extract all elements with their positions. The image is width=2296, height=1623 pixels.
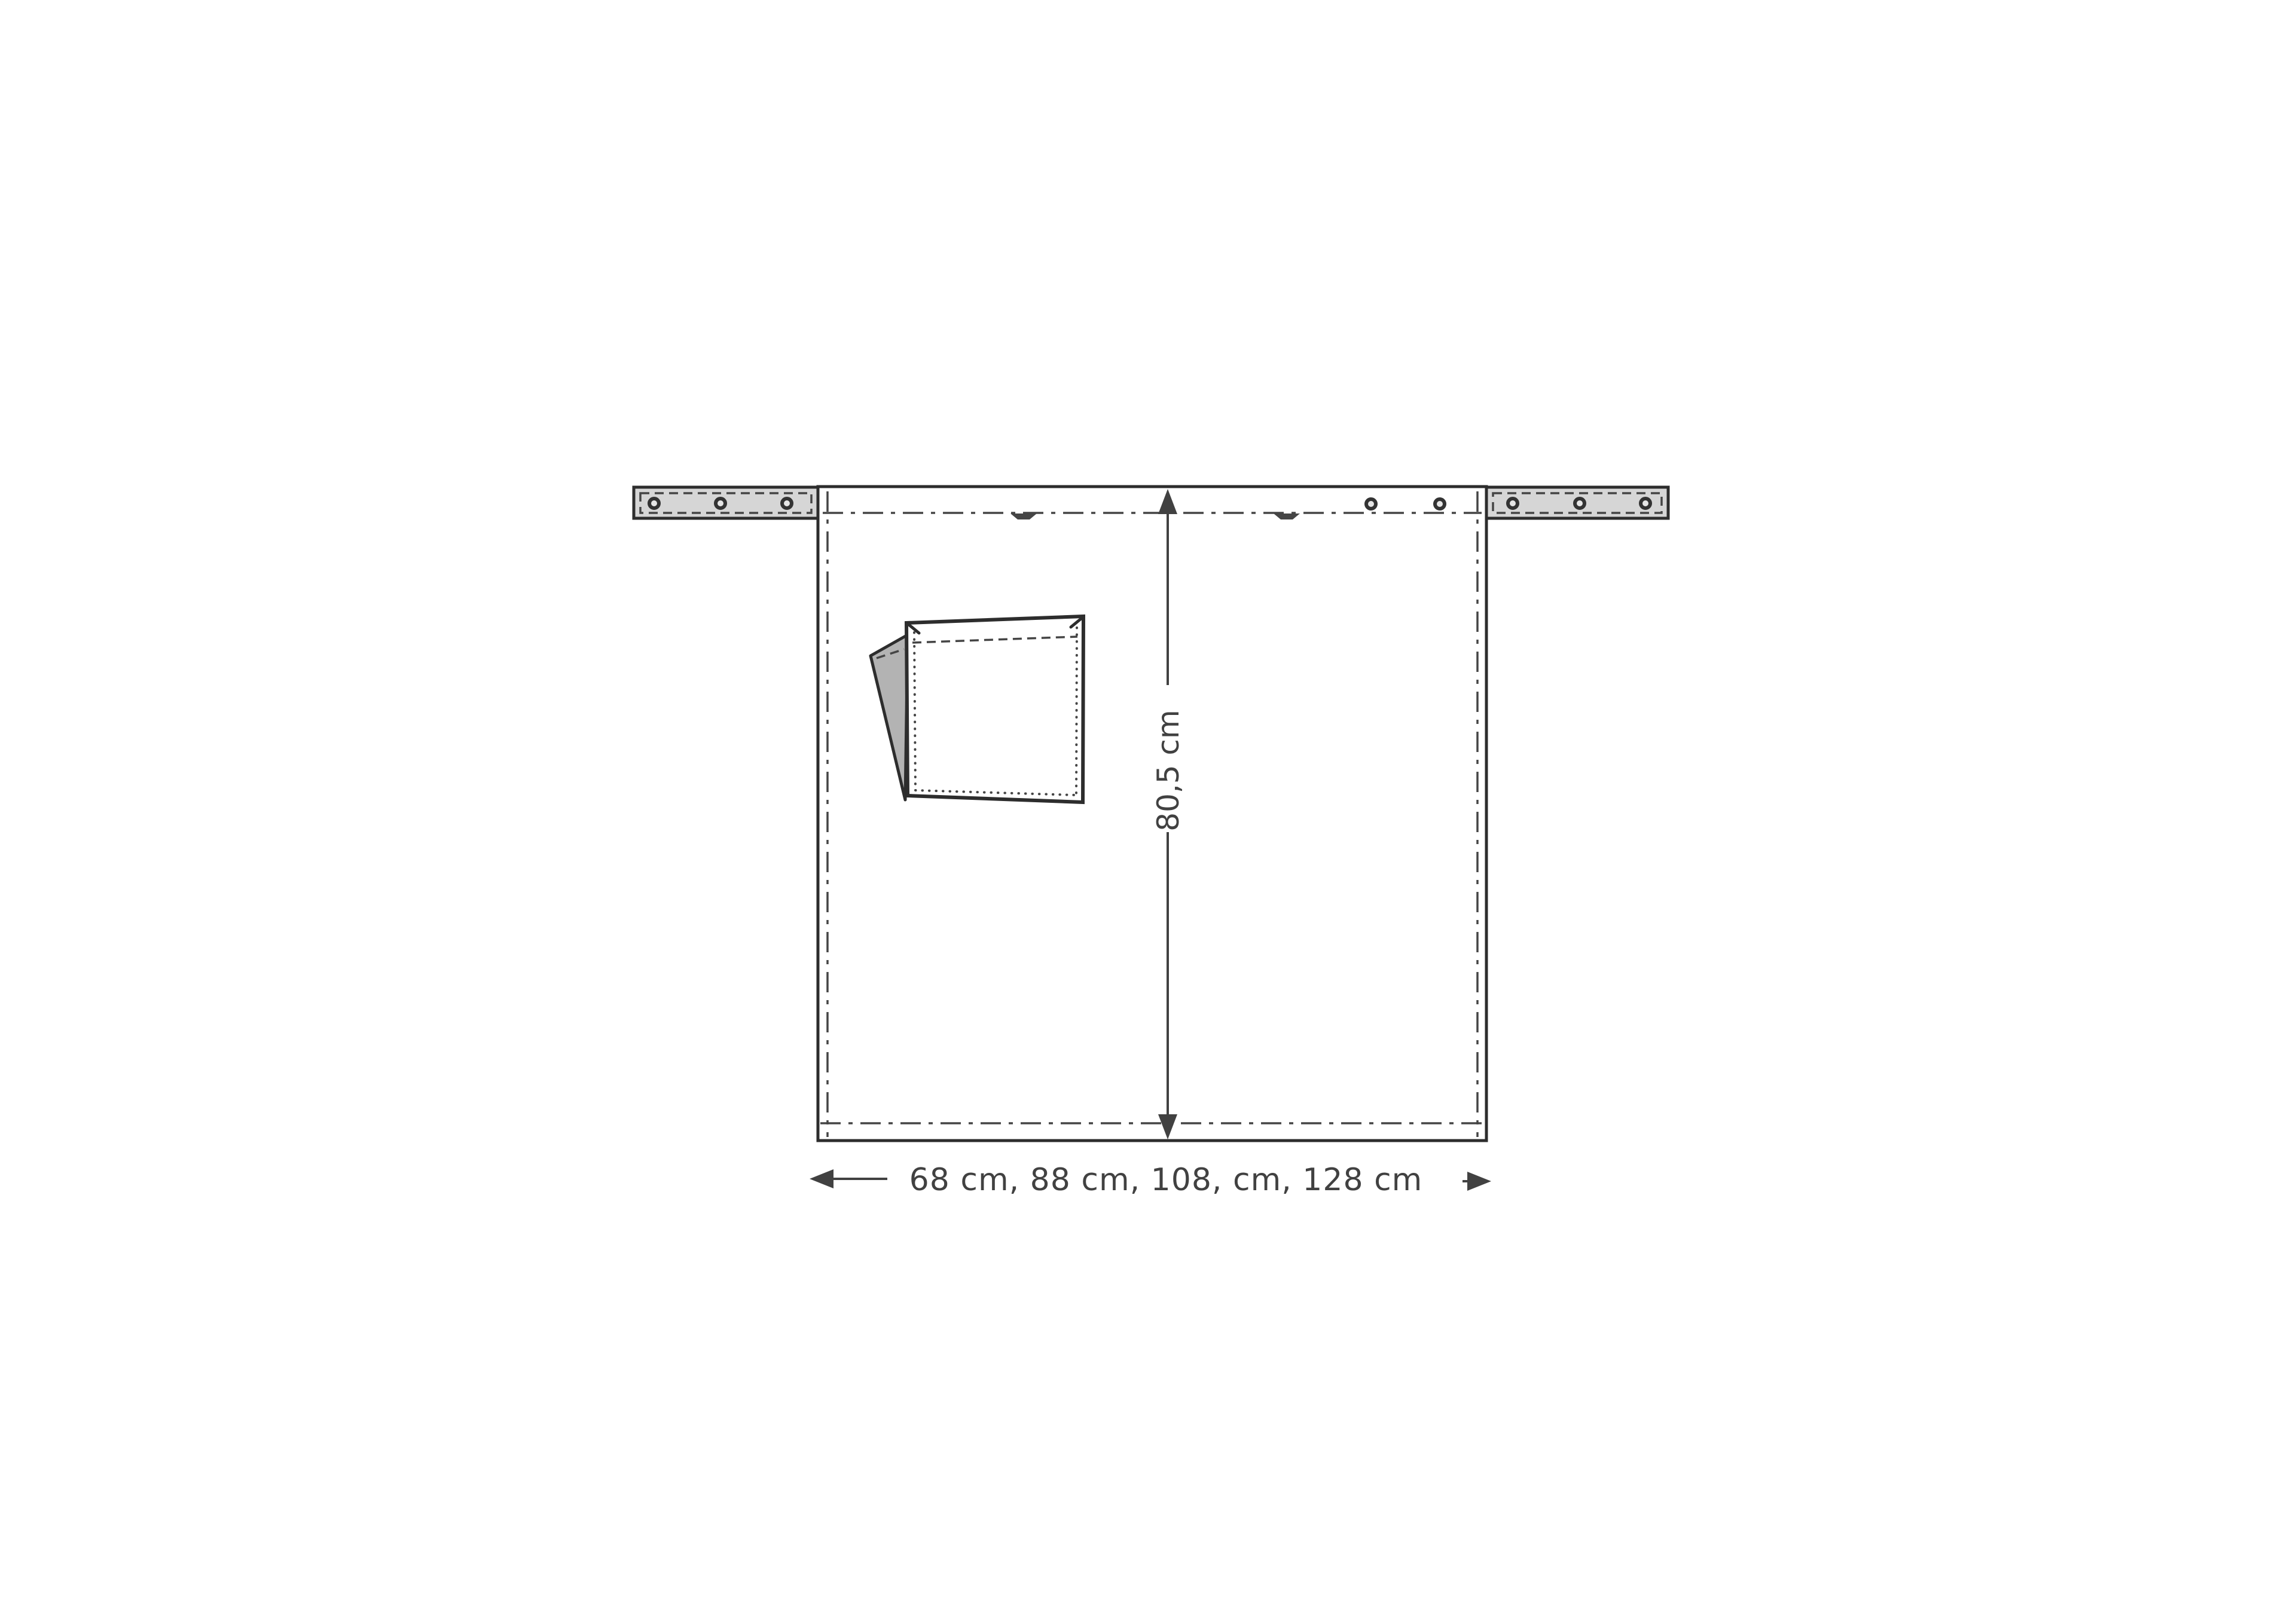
pocket xyxy=(906,616,1083,802)
rivet-icon xyxy=(1508,499,1518,508)
notch-mark xyxy=(1010,514,1037,519)
rivet-icon xyxy=(782,499,792,508)
rivet-icon xyxy=(1575,499,1584,508)
diagram-canvas xyxy=(0,0,2296,1623)
pocket-flap xyxy=(871,635,908,800)
rivet-icon xyxy=(1435,499,1445,509)
up-arrow-icon xyxy=(1158,489,1177,514)
apron-pattern-diagram: 80,5 cm 68 cm, 88 cm, 108, cm, 128 cm xyxy=(0,0,2296,1623)
width-dimension-label: 68 cm, 88 cm, 108, cm, 128 cm xyxy=(909,1162,1423,1198)
height-dimension-label: 80,5 cm xyxy=(1151,710,1186,831)
pocket-group xyxy=(871,616,1083,802)
rivet-icon xyxy=(1366,499,1376,509)
rivet-icon xyxy=(1641,499,1650,508)
rivet-icon xyxy=(716,499,725,508)
right-tie-strap xyxy=(1486,487,1668,518)
notch-mark xyxy=(1274,514,1300,519)
down-arrow-icon xyxy=(1158,1114,1177,1139)
left-arrow-icon xyxy=(810,1169,833,1188)
rivet-icon xyxy=(649,499,659,508)
left-tie-strap xyxy=(634,487,818,518)
right-arrow-icon xyxy=(1467,1172,1491,1191)
